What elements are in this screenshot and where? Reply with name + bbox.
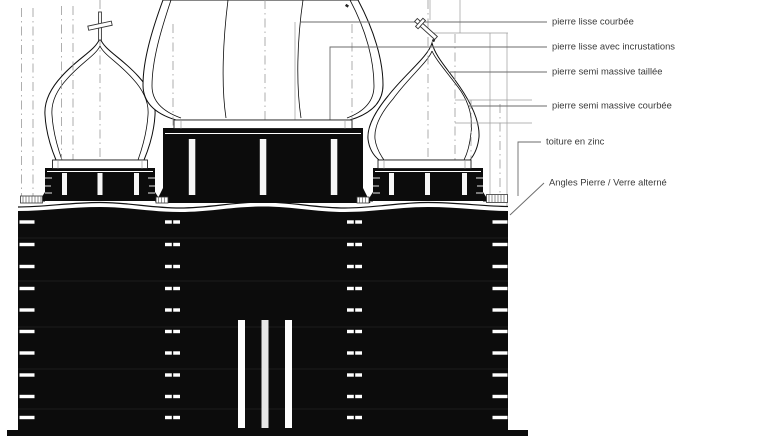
dome-base-cornice — [53, 160, 148, 169]
right-drum — [367, 160, 489, 202]
glass-dash — [20, 351, 35, 354]
label-pierre-semi-massive-taillee: pierre semi massive taillée — [552, 65, 662, 76]
glass-dash — [20, 308, 35, 311]
right-dome — [368, 43, 479, 160]
glass-dash — [173, 373, 180, 376]
glass-dash — [20, 330, 35, 333]
drum-window — [462, 173, 467, 195]
glass-dash — [165, 220, 172, 223]
glass-dash — [173, 265, 180, 268]
glass-dash — [347, 308, 354, 311]
base-plinth — [7, 430, 528, 436]
hatched-strip — [21, 196, 43, 203]
annotation-labels: pierre lisse courbée pierre lisse avec i… — [546, 15, 675, 187]
glass-dash — [173, 287, 180, 290]
label-pierre-lisse-incrustations: pierre lisse avec incrustations — [552, 40, 675, 51]
glass-dash — [493, 287, 508, 290]
glass-dash — [173, 416, 180, 419]
glass-dash — [165, 243, 172, 246]
glass-dash — [20, 287, 35, 290]
label-toiture-en-zinc: toiture en zinc — [546, 135, 605, 146]
hatched-strip — [156, 197, 168, 203]
window-bar — [285, 320, 292, 428]
glass-dash — [165, 395, 172, 398]
glass-dash — [173, 308, 180, 311]
glass-dash — [20, 243, 35, 246]
glass-dash — [355, 243, 362, 246]
leader-angles-pierre-verre — [510, 183, 544, 215]
glass-dash — [347, 243, 354, 246]
glass-dash — [493, 395, 508, 398]
glass-dash — [173, 330, 180, 333]
glass-dash — [347, 287, 354, 290]
glass-dash — [347, 330, 354, 333]
glass-dash — [165, 416, 172, 419]
left-drum — [39, 160, 161, 202]
church-elevation-svg: pierre lisse courbée pierre lisse avec i… — [0, 0, 760, 436]
central-drum — [156, 120, 371, 203]
glass-dash — [355, 416, 362, 419]
dome-base-cornice — [378, 160, 471, 169]
glass-dash — [355, 373, 362, 376]
window-bar — [238, 320, 245, 428]
window-bar — [262, 320, 269, 428]
glass-dash — [493, 243, 508, 246]
drum-window — [98, 173, 103, 195]
glass-dash — [355, 308, 362, 311]
glass-dash — [165, 330, 172, 333]
glass-dash — [493, 265, 508, 268]
hatched-strip — [357, 197, 369, 203]
drum-window — [134, 173, 139, 195]
glass-dash — [20, 265, 35, 268]
hatched-strip — [487, 195, 508, 203]
glass-dash — [347, 416, 354, 419]
glass-dash — [355, 330, 362, 333]
drum-window — [62, 173, 67, 195]
drum-window — [389, 173, 394, 195]
drum-window — [260, 139, 267, 195]
drum-window — [189, 139, 196, 195]
glass-dash — [493, 220, 508, 223]
glass-dash — [355, 265, 362, 268]
cross-left-icon — [88, 12, 112, 40]
glass-dash — [355, 351, 362, 354]
label-pierre-semi-massive-courbee: pierre semi massive courbée — [552, 99, 672, 110]
glass-dash — [20, 395, 35, 398]
drum-window — [425, 173, 430, 195]
glass-dash — [493, 373, 508, 376]
glass-dash — [173, 351, 180, 354]
glass-dash — [493, 330, 508, 333]
glass-dash — [493, 308, 508, 311]
glass-dash — [173, 243, 180, 246]
glass-dash — [165, 373, 172, 376]
label-pierre-lisse-courbee: pierre lisse courbée — [552, 15, 634, 26]
glass-dash — [173, 220, 180, 223]
glass-dash — [20, 373, 35, 376]
glass-dash — [355, 220, 362, 223]
glass-dash — [493, 351, 508, 354]
glass-dash — [355, 395, 362, 398]
glass-dash — [347, 265, 354, 268]
glass-dash — [347, 351, 354, 354]
glass-dash — [347, 220, 354, 223]
dome-base-cornice — [174, 120, 352, 129]
glass-dash — [173, 395, 180, 398]
glass-dash — [20, 220, 35, 223]
leader-toiture-en-zinc — [518, 142, 541, 196]
glass-dash — [20, 416, 35, 419]
glass-dash — [165, 265, 172, 268]
glass-dash — [165, 308, 172, 311]
drum-window — [331, 139, 338, 195]
glass-dash — [165, 351, 172, 354]
architectural-elevation-drawing: pierre lisse courbée pierre lisse avec i… — [0, 0, 760, 436]
glass-dash — [347, 373, 354, 376]
glass-dash — [355, 287, 362, 290]
label-angles-pierre-verre: Angles Pierre / Verre alterné — [549, 176, 667, 187]
glass-dash — [347, 395, 354, 398]
central-dome — [143, 0, 383, 120]
glass-dash — [165, 287, 172, 290]
glass-dash — [493, 416, 508, 419]
